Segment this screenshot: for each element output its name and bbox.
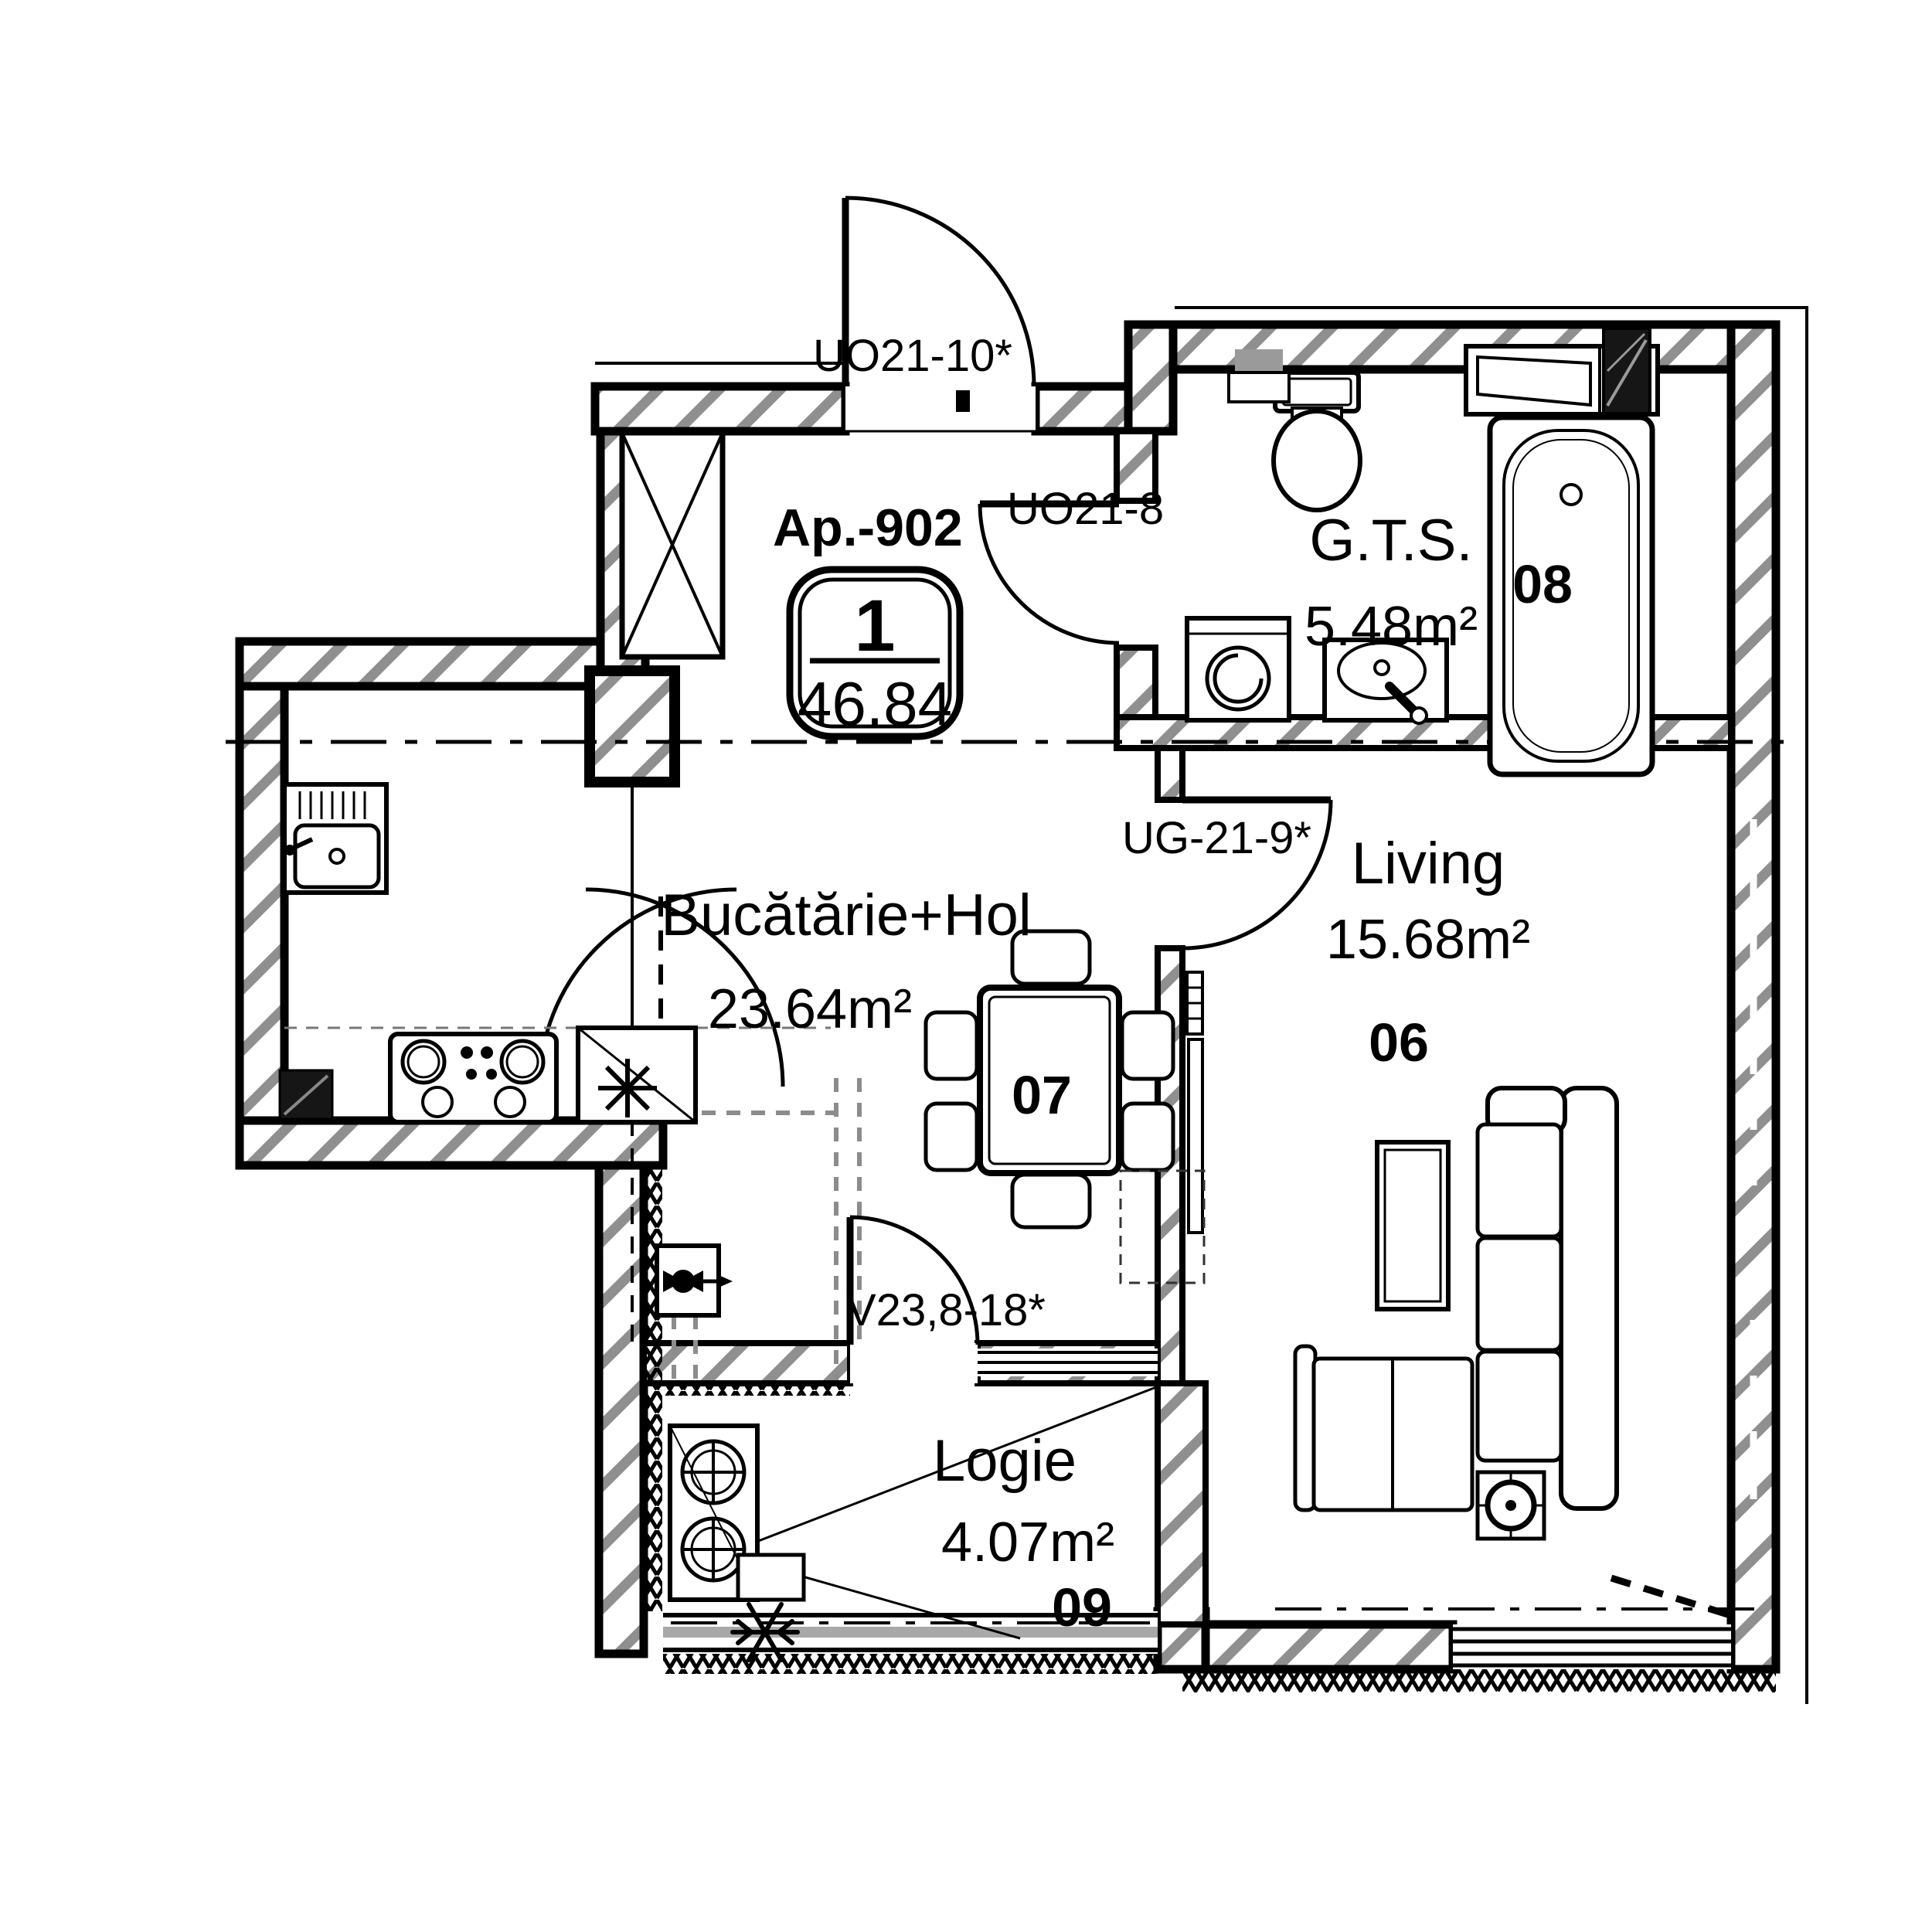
- insulation-bottom-living: [1182, 1669, 1776, 1692]
- floor-shaft: [280, 1070, 332, 1119]
- living-name: Living: [1352, 831, 1505, 896]
- kitchen-sink: [284, 784, 386, 893]
- living-number: 06: [1369, 1012, 1429, 1073]
- loggia-top-window: [978, 1349, 1158, 1376]
- partition-hall-living-stub: [1158, 748, 1182, 800]
- insulation-loggia-top: [644, 1380, 850, 1396]
- floor-plan-svg: UO21-10* Ap.-902 1 46.84 UO21-8 G.T.S. 5…: [0, 0, 1932, 1932]
- bathroom-area: 5.48m²: [1304, 596, 1478, 658]
- sofa-cushion-3: [1478, 1352, 1561, 1461]
- living-door-code: UG-21-9*: [1122, 813, 1311, 863]
- floor-lamp: [1478, 1472, 1544, 1539]
- column: [590, 671, 675, 782]
- kitchen-name: Bucătărie+Hol: [661, 883, 1032, 948]
- kitchen-area: 23.64m²: [708, 978, 912, 1040]
- loggia-name: Logie: [933, 1428, 1077, 1494]
- badge-rooms-count: 1: [855, 585, 896, 667]
- stove: [390, 1034, 556, 1122]
- vent-shaft: [1604, 328, 1650, 413]
- chair-bottom: [1012, 1175, 1090, 1227]
- insulation-loggia-side: [644, 1165, 662, 1611]
- chair-right-1: [1122, 1012, 1173, 1079]
- fridge-star-icon: [598, 1059, 657, 1117]
- chair-right-2: [1122, 1104, 1173, 1170]
- loggia-area: 4.07m²: [941, 1512, 1114, 1573]
- wall-kitchen-left: [240, 641, 284, 1165]
- balcony-door-code: V23,8-18*: [846, 1285, 1046, 1335]
- sofa-back: [1561, 1088, 1617, 1509]
- radiator: [1187, 972, 1202, 1034]
- wall-kitchen-bottom: [240, 1121, 663, 1165]
- loggia-number: 09: [1052, 1577, 1112, 1638]
- sofa-cushion-1: [1478, 1124, 1561, 1236]
- bathroom-number: 08: [1512, 554, 1573, 614]
- partition-bath-left-bottom: [1117, 648, 1155, 717]
- electrical-box: [1229, 349, 1289, 402]
- apartment-label: Ap.-902: [773, 498, 963, 557]
- wardrobe: [622, 433, 723, 657]
- wall-entrance-right: [1036, 386, 1128, 431]
- wall-loggia-left: [599, 1165, 644, 1654]
- chair-left-2: [926, 1104, 977, 1170]
- washing-machine: [1187, 618, 1289, 720]
- wall-bottom-living: [1182, 1624, 1453, 1669]
- bathroom-door-code: UO21-8: [1007, 484, 1164, 534]
- condensate-box: [738, 1555, 804, 1600]
- badge-total-area: 46.84: [798, 669, 952, 738]
- apartment-badge: 1 46.84: [790, 570, 960, 738]
- wall-entrance-left: [595, 386, 845, 431]
- wall-step: [1128, 325, 1173, 431]
- living-area: 15.68m²: [1326, 909, 1530, 971]
- sofa-cushion-2: [1478, 1238, 1561, 1350]
- table-number: 07: [1012, 1065, 1072, 1125]
- coffee-table: [1377, 1142, 1448, 1309]
- chair-left-1: [926, 1012, 977, 1079]
- entrance-door-code: UO21-10*: [813, 331, 1012, 381]
- refrigerator: [578, 1028, 696, 1122]
- bathroom-name: G.T.S.: [1309, 508, 1472, 573]
- door-stop: [956, 390, 970, 412]
- insulation-loggia-bottom: [663, 1654, 1158, 1674]
- partition-loggia-living: [1158, 1383, 1206, 1624]
- floor-plan: UO21-10* Ap.-902 1 46.84 UO21-8 G.T.S. 5…: [0, 0, 1932, 1932]
